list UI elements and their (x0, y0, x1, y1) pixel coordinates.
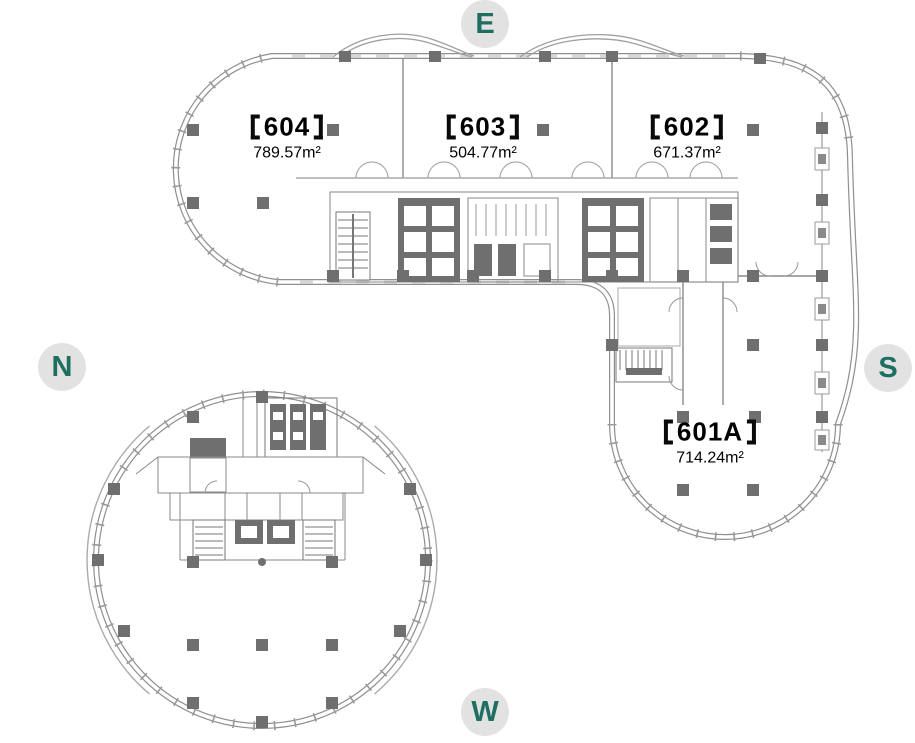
circle-lifts (235, 520, 295, 544)
right-bracket (714, 114, 723, 139)
unit-number-601A: 601A (664, 417, 756, 447)
left-bracket (651, 114, 660, 139)
unit-number-604: 604 (251, 112, 323, 142)
unit-label-601A: 601A 714.24m² (664, 417, 756, 470)
elevator-bank-1 (398, 198, 460, 282)
left-bracket (251, 114, 260, 139)
right-bracket (747, 419, 756, 444)
unit-area-601A: 714.24m² (664, 448, 756, 470)
compass-west-badge: W (461, 688, 509, 736)
unit-area-602: 671.37m² (651, 143, 723, 165)
right-bracket (510, 114, 519, 139)
central-core (296, 162, 738, 282)
stairwell-2 (616, 348, 672, 382)
unit-number-602: 602 (651, 112, 723, 142)
stairwell-1 (336, 212, 370, 280)
compass-east-letter: E (475, 10, 494, 39)
compass-west-letter: W (471, 698, 498, 727)
compass-north-letter: N (52, 353, 73, 382)
floor-plan-page: E N S W 604 789.57m² 603 504.77m² 602 67… (0, 0, 915, 743)
unit-number-603: 603 (447, 112, 519, 142)
unit-area-604: 789.57m² (251, 143, 323, 165)
compass-north-badge: N (38, 343, 86, 391)
right-bracket (314, 114, 323, 139)
circle-stair-right (303, 520, 335, 560)
unit-label-603: 603 504.77m² (447, 112, 519, 165)
compass-south-badge: S (864, 344, 912, 392)
elevator-bank-2 (582, 198, 644, 282)
restroom-block (468, 198, 558, 282)
service-rooms-right (650, 198, 738, 282)
left-bracket (447, 114, 456, 139)
compass-south-letter: S (878, 354, 897, 383)
circle-stair-left (193, 520, 225, 560)
compass-east-badge: E (461, 0, 509, 48)
unit-area-603: 504.77m² (447, 143, 519, 165)
left-bracket (664, 419, 673, 444)
unit-label-604: 604 789.57m² (251, 112, 323, 165)
unit-label-602: 602 671.37m² (651, 112, 723, 165)
